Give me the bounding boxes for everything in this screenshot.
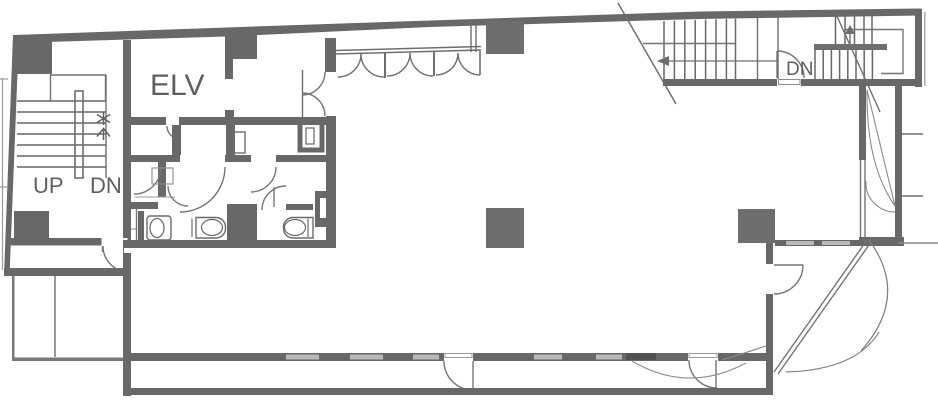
svg-text:UP: UP <box>33 173 64 198</box>
svg-text:DN: DN <box>786 59 813 80</box>
svg-text:DN: DN <box>90 173 122 198</box>
svg-text:ELV: ELV <box>150 69 204 102</box>
